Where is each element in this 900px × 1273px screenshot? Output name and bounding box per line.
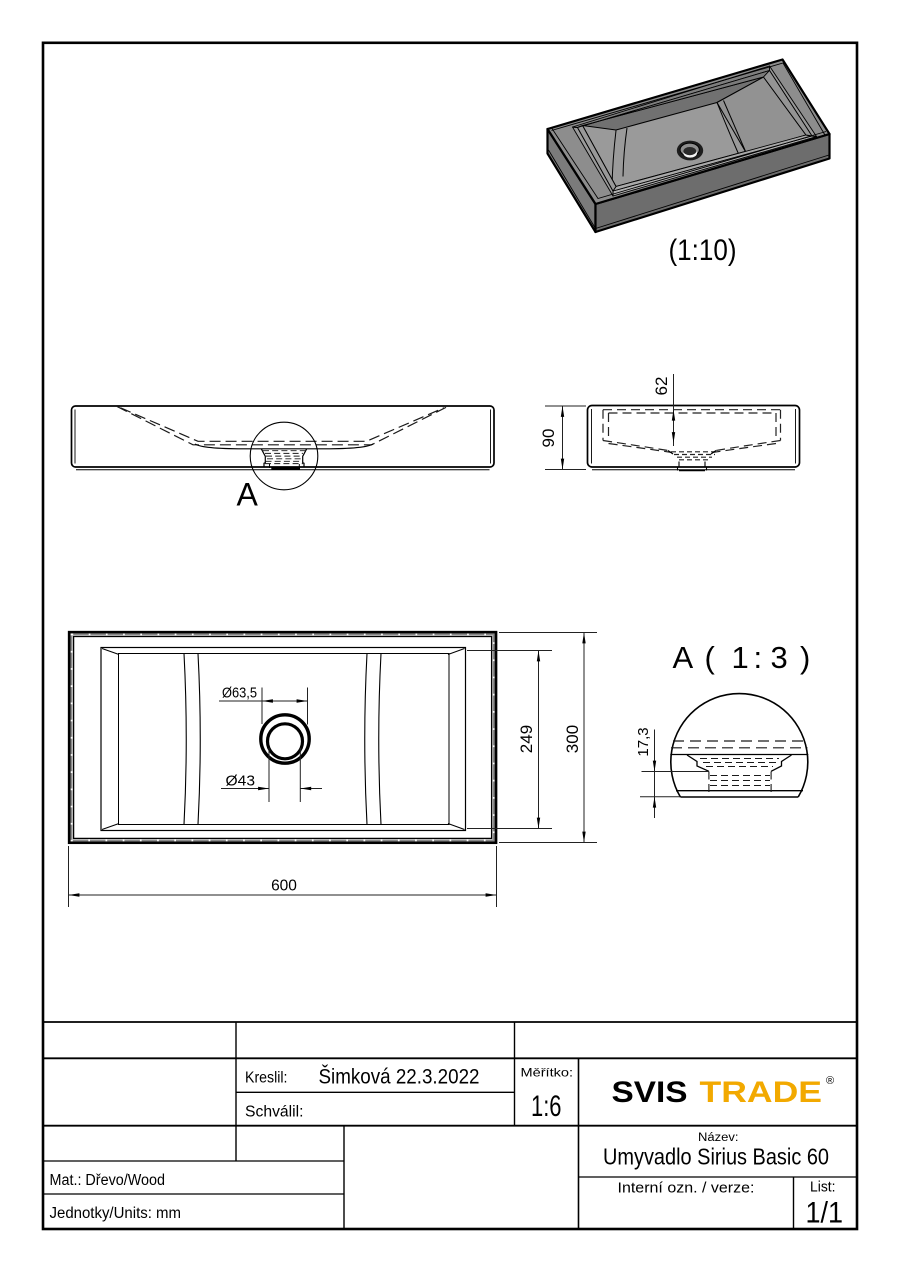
svg-text:Měřítko:: Měřítko:: [521, 1067, 574, 1080]
svg-text:Interní ozn. / verze:: Interní ozn. / verze:: [618, 1180, 755, 1196]
svg-text:®: ®: [826, 1075, 834, 1087]
svg-text:Šimková 22.3.2022: Šimková 22.3.2022: [319, 1066, 480, 1089]
svg-text:Ø43: Ø43: [226, 773, 256, 790]
svg-text:A: A: [237, 477, 259, 513]
svg-text:List:: List:: [810, 1179, 836, 1196]
svg-text:Ø63,5: Ø63,5: [222, 685, 257, 702]
svg-text:Kreslil:: Kreslil:: [245, 1070, 288, 1087]
svg-text:1/1: 1/1: [806, 1197, 844, 1230]
svg-text:SVIS: SVIS: [612, 1076, 688, 1109]
svg-text:17,3: 17,3: [635, 727, 652, 756]
svg-text:TRADE: TRADE: [700, 1076, 823, 1109]
svg-text:62: 62: [652, 377, 671, 396]
svg-text:Název:: Název:: [698, 1132, 739, 1144]
svg-text:249: 249: [517, 725, 536, 753]
svg-text:Schválil:: Schválil:: [245, 1104, 304, 1121]
svg-text:(1:10): (1:10): [669, 234, 737, 267]
svg-text:Umyvadlo Sirius Basic 60: Umyvadlo Sirius Basic 60: [603, 1144, 829, 1170]
svg-text:300: 300: [563, 725, 582, 753]
svg-text:600: 600: [271, 878, 297, 895]
svg-text:90: 90: [539, 429, 558, 448]
svg-text:Jednotky/Units: mm: Jednotky/Units: mm: [50, 1205, 182, 1222]
svg-text:Mat.: Dřevo/Wood: Mat.: Dřevo/Wood: [50, 1172, 166, 1189]
svg-text:1:6: 1:6: [531, 1090, 562, 1123]
